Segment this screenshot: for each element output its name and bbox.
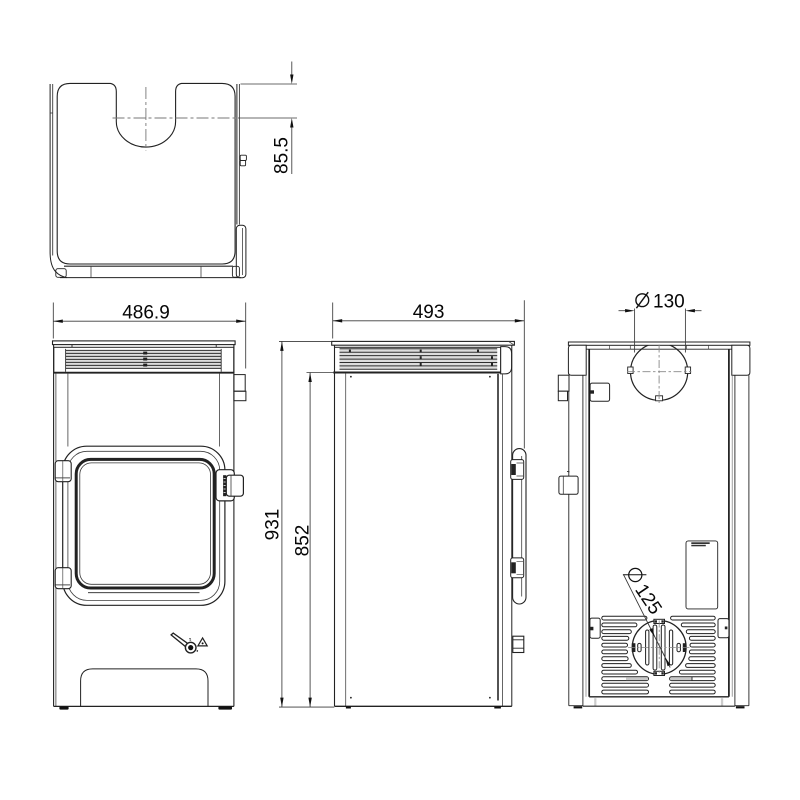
- svg-text:130: 130: [653, 292, 685, 313]
- svg-text:85.5: 85.5: [271, 137, 292, 174]
- svg-text:931: 931: [262, 509, 283, 541]
- svg-text:486.9: 486.9: [122, 302, 170, 323]
- svg-text:852: 852: [292, 525, 313, 557]
- svg-text:493: 493: [413, 302, 445, 323]
